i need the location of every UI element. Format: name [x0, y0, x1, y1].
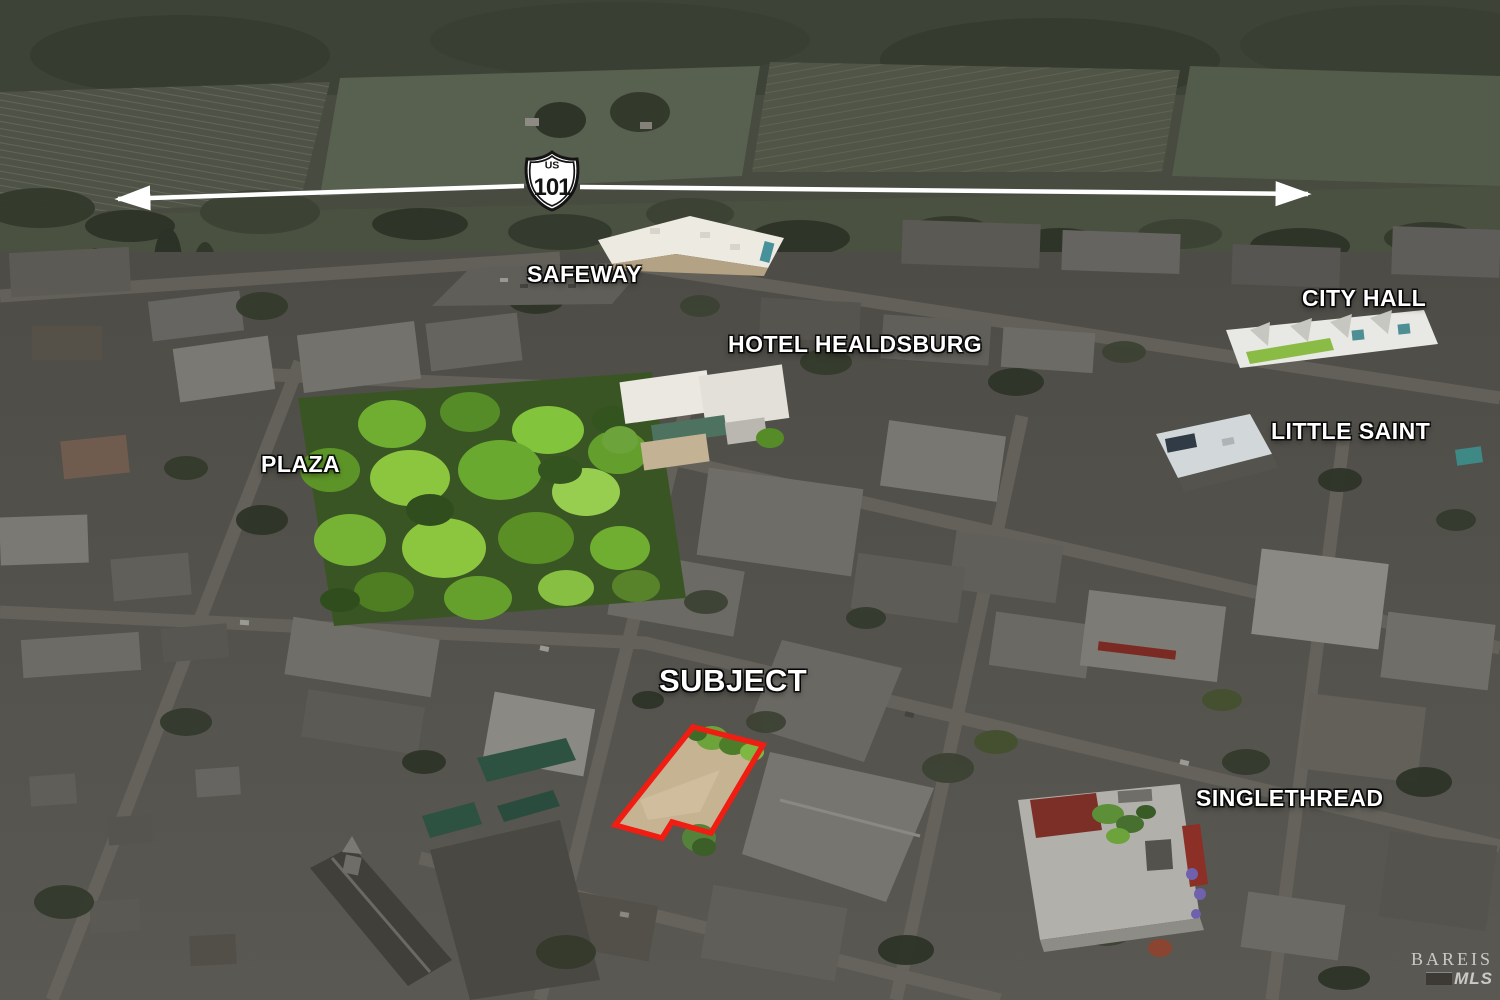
watermark-mls: MLS	[1454, 970, 1493, 987]
aerial-photo-background: US 101	[0, 0, 1500, 1000]
label-safeway: SAFEWAY	[527, 261, 642, 288]
label-plaza: PLAZA	[261, 451, 340, 478]
shield-route-prefix: US	[545, 160, 560, 172]
watermark-bar	[1426, 972, 1452, 985]
label-hotel-healdsburg: HOTEL HEALDSBURG	[728, 331, 982, 358]
label-subject: SUBJECT	[659, 663, 807, 699]
label-city-hall: CITY HALL	[1302, 285, 1426, 312]
label-little-saint: LITTLE SAINT	[1271, 418, 1430, 445]
watermark-brand: BAREIS	[1411, 950, 1493, 968]
mls-watermark: BAREIS MLS	[1415, 950, 1493, 987]
label-singlethread: SINGLETHREAD	[1196, 785, 1383, 812]
singlethread-building	[1018, 784, 1208, 957]
shield-route-number: 101	[533, 174, 571, 201]
